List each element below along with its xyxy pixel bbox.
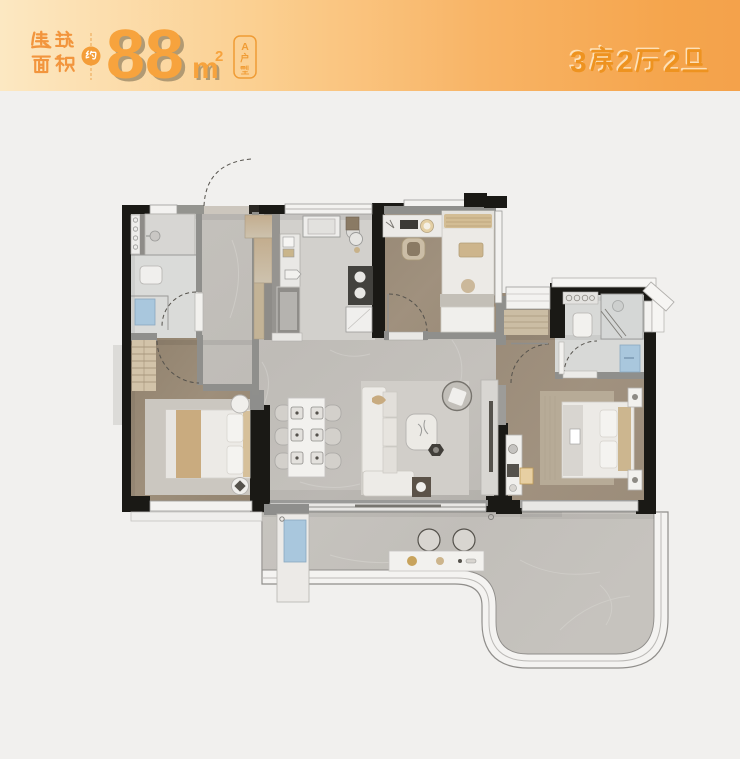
- svg-text:2: 2: [664, 46, 681, 79]
- svg-text:3: 3: [570, 46, 587, 79]
- svg-text:88: 88: [106, 15, 184, 93]
- svg-text:2: 2: [215, 48, 223, 65]
- svg-text:A: A: [241, 41, 249, 53]
- svg-text:2: 2: [617, 46, 634, 79]
